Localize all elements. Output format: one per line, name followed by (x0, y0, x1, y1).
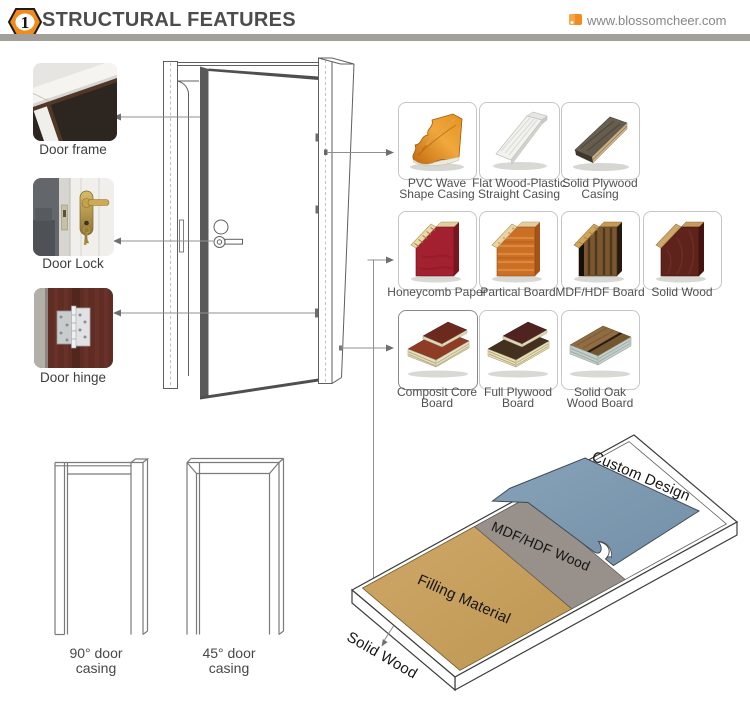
card-solid-oak-wood-board (561, 310, 640, 390)
casing-90-drawing (55, 459, 148, 635)
flat-straight-casing-art (484, 107, 555, 175)
door-lock-photo (33, 178, 114, 256)
solid-wood-art (647, 216, 718, 285)
card-honeycomb-paper (398, 211, 477, 290)
door-hinge-label: Door hinge (13, 370, 133, 385)
casing-90-label: 90° door casing (36, 646, 156, 676)
door-hinge-edge (200, 67, 209, 399)
card-full-plywood-board (479, 310, 558, 390)
door-hinge-photo (34, 288, 113, 368)
casing-45-drawing (187, 459, 284, 635)
door-lock-label: Door Lock (13, 256, 133, 271)
partical-board-art (483, 216, 554, 285)
full-plywood-board-art (483, 315, 554, 385)
layer-diagram (352, 435, 737, 690)
card-mdf-hdf-board (561, 211, 640, 290)
pvc-wave-casing-art (402, 107, 473, 175)
mdf-hdf-board-art (565, 216, 636, 285)
door-drawing (164, 58, 355, 400)
door-frame-label: Door frame (13, 142, 133, 157)
casing-45-label: 45° door casing (169, 646, 289, 676)
card-composit-core-board (398, 310, 478, 390)
solid-oak-wood-board-label: Solid Oak Wood Board (545, 387, 655, 408)
solid-oak-wood-board-art (565, 315, 636, 385)
card-pvc-wave-casing (398, 102, 477, 180)
card-solid-wood (643, 211, 722, 290)
door-frame-photo (33, 63, 117, 141)
solid-plywood-casing-art (565, 107, 636, 175)
card-solid-plywood-casing (561, 102, 640, 180)
door-frame-photo-art (33, 63, 117, 141)
door-hinge-photo-art (34, 288, 113, 368)
card-partical-board (479, 211, 558, 290)
door-lock-photo-art (33, 178, 114, 256)
solid-plywood-casing-label: Solid Plywood Casing (545, 178, 655, 199)
solid-wood-label: Solid Wood (627, 287, 737, 298)
honeycomb-paper-art (402, 216, 473, 285)
card-flat-straight-casing (479, 102, 560, 180)
composit-core-board-art (403, 315, 474, 385)
